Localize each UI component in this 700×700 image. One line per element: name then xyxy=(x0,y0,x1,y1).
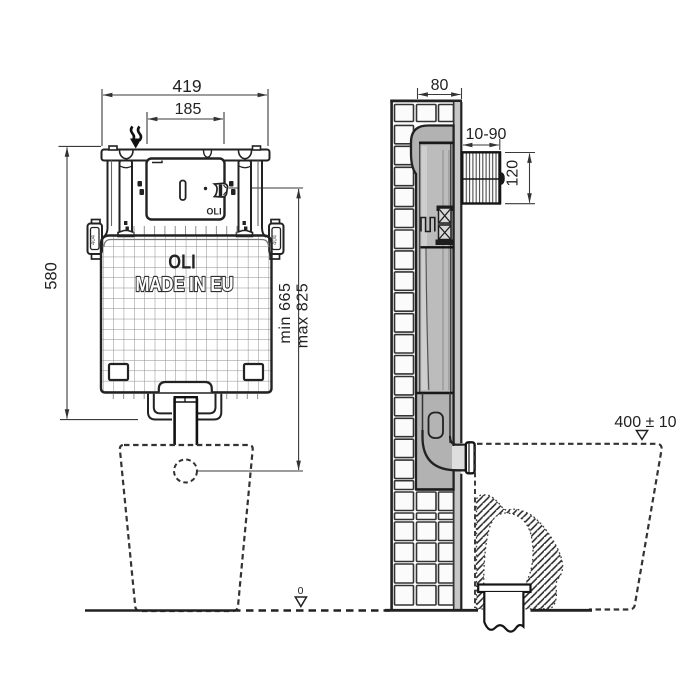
svg-text:10-90: 10-90 xyxy=(466,126,507,143)
svg-text:580: 580 xyxy=(42,262,60,290)
svg-text:min 665: min 665 xyxy=(277,282,294,343)
svg-text:404: 404 xyxy=(91,234,97,245)
svg-text:80: 80 xyxy=(431,77,449,94)
svg-text:419: 419 xyxy=(172,76,201,96)
svg-text:120: 120 xyxy=(505,160,522,187)
svg-text:max 825: max 825 xyxy=(295,283,312,349)
svg-text:OLI: OLI xyxy=(207,207,222,217)
svg-text:OLI: OLI xyxy=(168,252,196,274)
svg-text:0: 0 xyxy=(298,585,304,597)
svg-text:185: 185 xyxy=(175,101,202,118)
svg-text:400 ± 10: 400 ± 10 xyxy=(614,414,676,431)
svg-text:404: 404 xyxy=(273,234,279,245)
svg-text:MADE IN EU: MADE IN EU xyxy=(136,274,234,296)
